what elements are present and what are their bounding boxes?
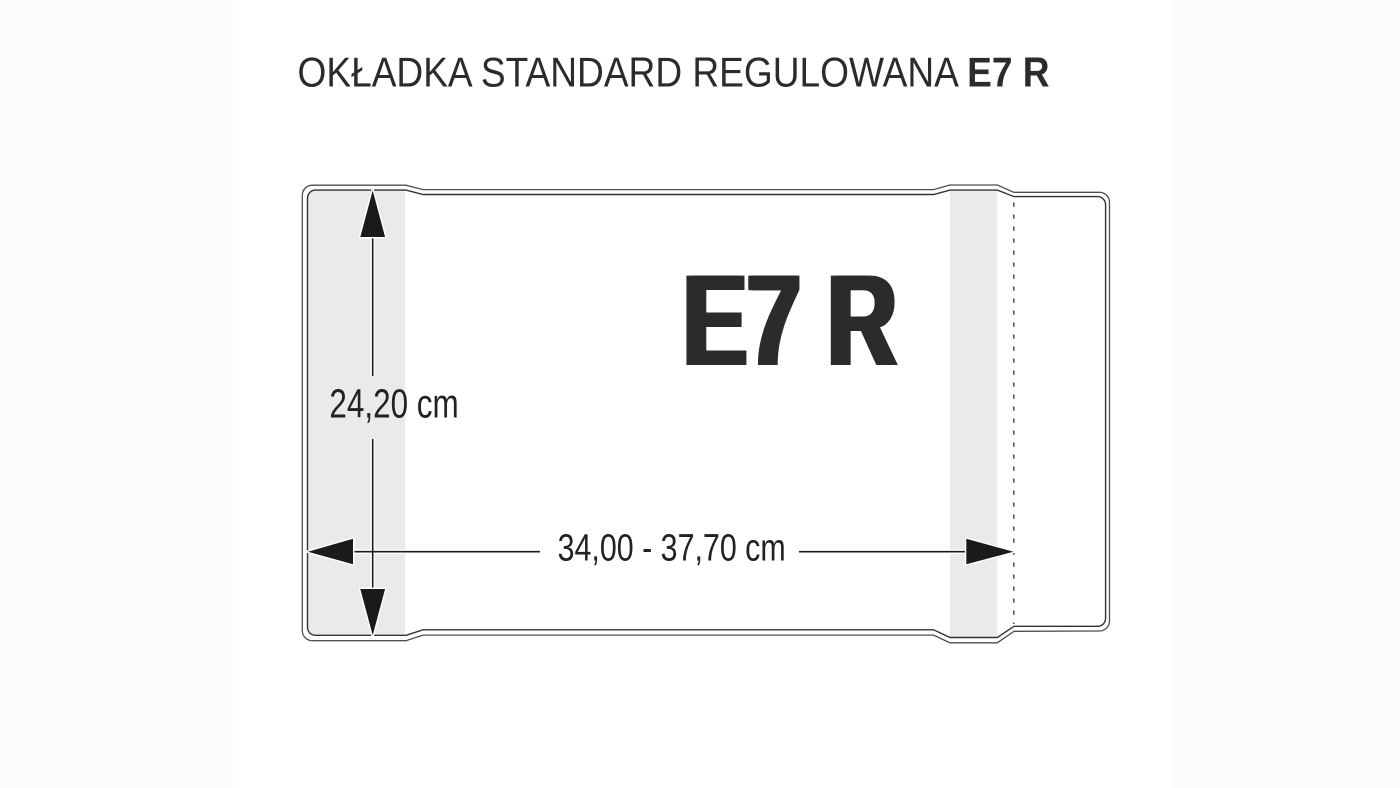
svg-text:34,00 - 37,70 cm: 34,00 - 37,70 cm — [558, 527, 786, 569]
svg-text:OKŁADKA STANDARD REGULOWANA E7: OKŁADKA STANDARD REGULOWANA E7 R — [298, 49, 1050, 96]
svg-text:E7 R: E7 R — [686, 248, 900, 394]
svg-text:24,20 cm: 24,20 cm — [329, 381, 458, 427]
